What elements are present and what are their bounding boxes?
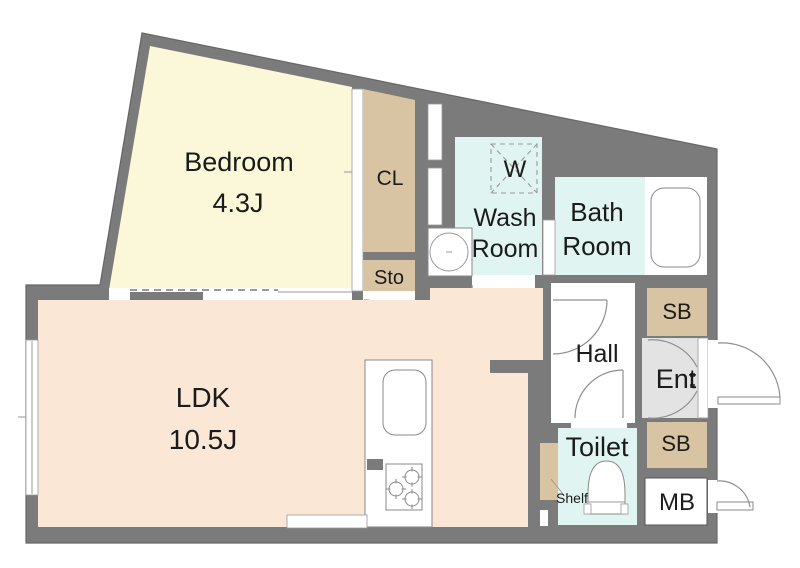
stove-icon — [386, 464, 422, 510]
toilet-opening — [571, 418, 627, 428]
kitchen-sink-icon — [383, 370, 426, 435]
bathroom-door — [543, 220, 555, 275]
entrance-door-panel — [698, 338, 708, 418]
ldk-hall-wall-stub — [490, 360, 552, 373]
entrance-label: Ent — [656, 364, 697, 394]
bedroom-wall-stub — [130, 292, 203, 300]
shelf-label: Shelf — [556, 490, 588, 506]
wall-slot-upper — [428, 104, 442, 160]
wall-niche — [540, 510, 548, 526]
ldk-size-label: 10.5J — [169, 424, 238, 455]
ldk-floor — [38, 288, 543, 527]
floor-plan-svg: Bedroom 4.3J CL Sto W Wash Room Bath Roo… — [0, 0, 800, 568]
bathroom-label-line2: Room — [562, 231, 631, 261]
toilet-icon — [588, 461, 625, 514]
shoe-box-upper-label: SB — [662, 299, 691, 324]
toilet-label: Toilet — [565, 432, 629, 462]
washroom-opening — [472, 275, 535, 288]
storage-label: Sto — [374, 267, 404, 289]
floor-plan-page: Bedroom 4.3J CL Sto W Wash Room Bath Roo… — [0, 0, 800, 568]
bathtub-icon — [651, 188, 700, 267]
front-door-leaf — [718, 397, 780, 404]
shoe-box-lower-label: SB — [661, 431, 690, 456]
bathroom-label-line1: Bath — [570, 197, 624, 227]
toilet-base-right — [621, 504, 628, 514]
closet-label: CL — [377, 167, 404, 190]
window-bottom — [287, 515, 367, 528]
kitchen-wall-stub — [367, 459, 383, 470]
washroom-label-line2: Room — [472, 235, 539, 263]
closet-sliding-door — [352, 89, 363, 291]
front-door-opening — [708, 340, 718, 408]
wall-slot-lower — [428, 168, 442, 225]
washroom-label-line1: Wash — [474, 204, 537, 232]
ldk-label: LDK — [176, 382, 231, 413]
bedroom-label: Bedroom — [184, 147, 294, 177]
meter-box-label: MB — [659, 489, 695, 516]
storage-opening — [363, 291, 415, 300]
washer-label: W — [504, 156, 527, 183]
meter-box-door-leaf — [717, 502, 753, 510]
bedroom-size-label: 4.3J — [212, 188, 263, 218]
hall-label: Hall — [575, 340, 618, 368]
